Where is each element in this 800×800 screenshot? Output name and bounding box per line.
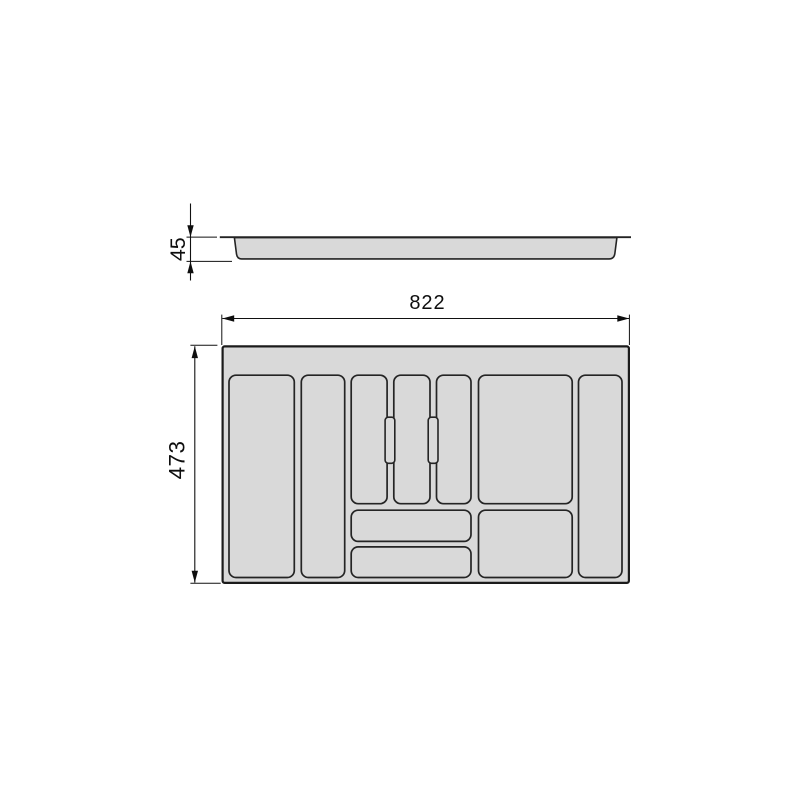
svg-text:822: 822 — [409, 292, 445, 314]
svg-text:473: 473 — [164, 441, 189, 480]
svg-text:45: 45 — [166, 237, 190, 261]
